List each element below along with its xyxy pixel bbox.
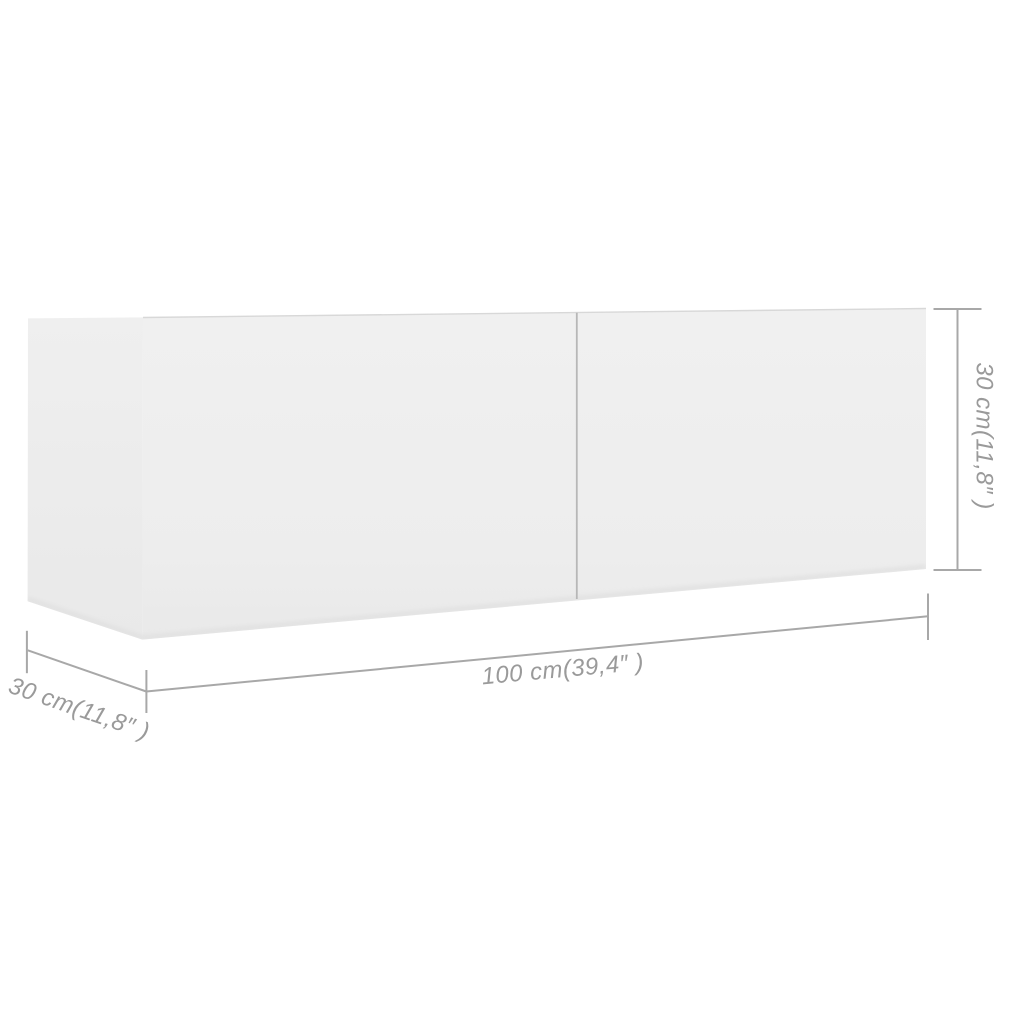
svg-text:100 cm(39,4″ ): 100 cm(39,4″ ): [480, 649, 645, 691]
svg-text:30 cm(11,8″ ): 30 cm(11,8″ ): [5, 672, 153, 745]
svg-text:30 cm(11,8″ ): 30 cm(11,8″ ): [971, 362, 998, 509]
